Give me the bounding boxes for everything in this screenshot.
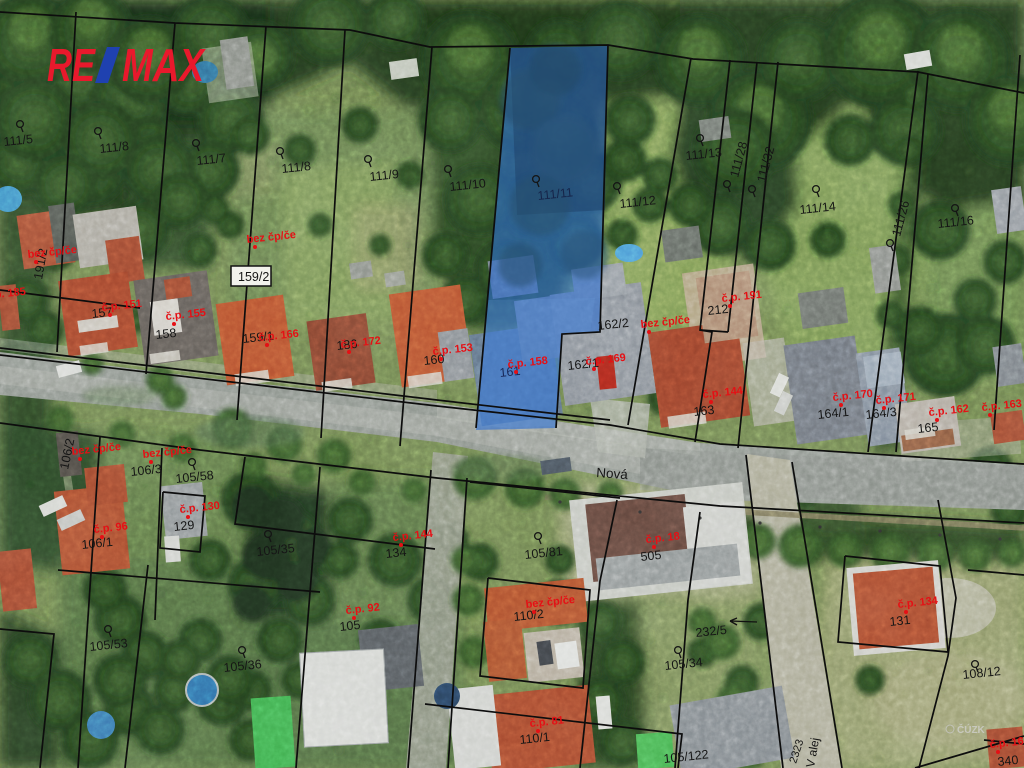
svg-text:134: 134 <box>385 545 407 561</box>
svg-text:Nová: Nová <box>596 465 629 482</box>
svg-text:163: 163 <box>693 403 715 419</box>
svg-text:MAX: MAX <box>122 39 206 91</box>
svg-text:ČÚZK: ČÚZK <box>957 723 986 736</box>
svg-text:505: 505 <box>640 548 662 564</box>
svg-text:159/2: 159/2 <box>238 270 269 284</box>
svg-text:RE: RE <box>47 39 96 91</box>
svg-text:165: 165 <box>917 420 939 436</box>
svg-text:105: 105 <box>339 618 361 634</box>
svg-text:340: 340 <box>997 753 1019 768</box>
svg-text:131: 131 <box>889 613 911 629</box>
svg-text:158: 158 <box>155 326 177 342</box>
svg-text:129: 129 <box>173 518 195 534</box>
